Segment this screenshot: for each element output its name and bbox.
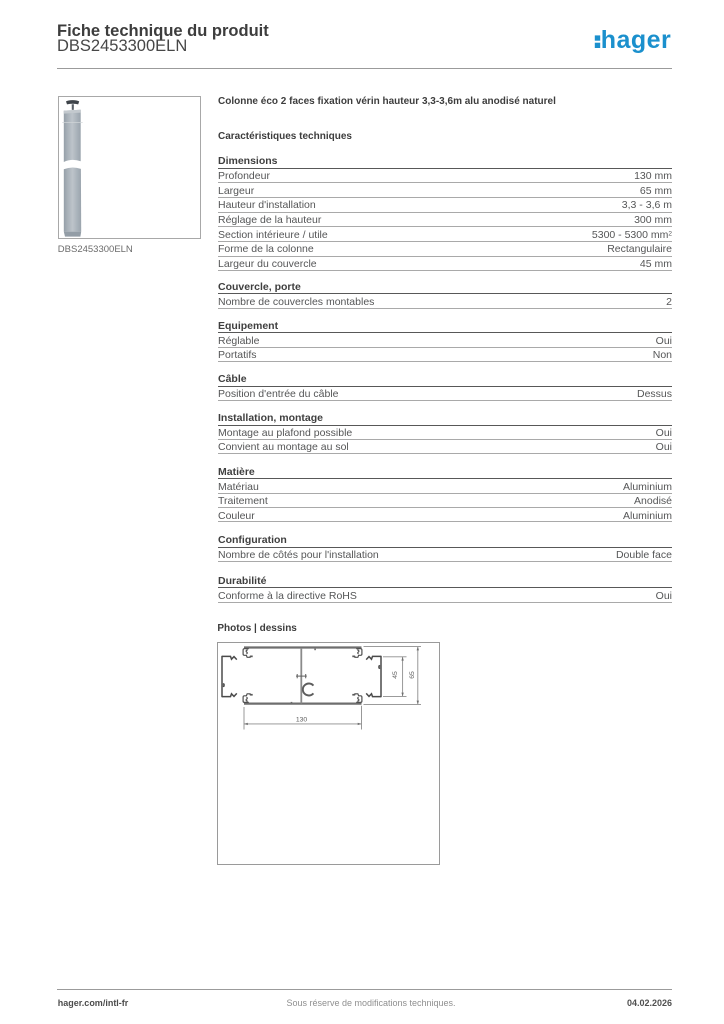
svg-text:hager: hager (601, 27, 671, 54)
svg-text:65: 65 (409, 671, 416, 679)
svg-text:45: 45 (392, 671, 399, 679)
svg-text:130: 130 (296, 717, 308, 724)
